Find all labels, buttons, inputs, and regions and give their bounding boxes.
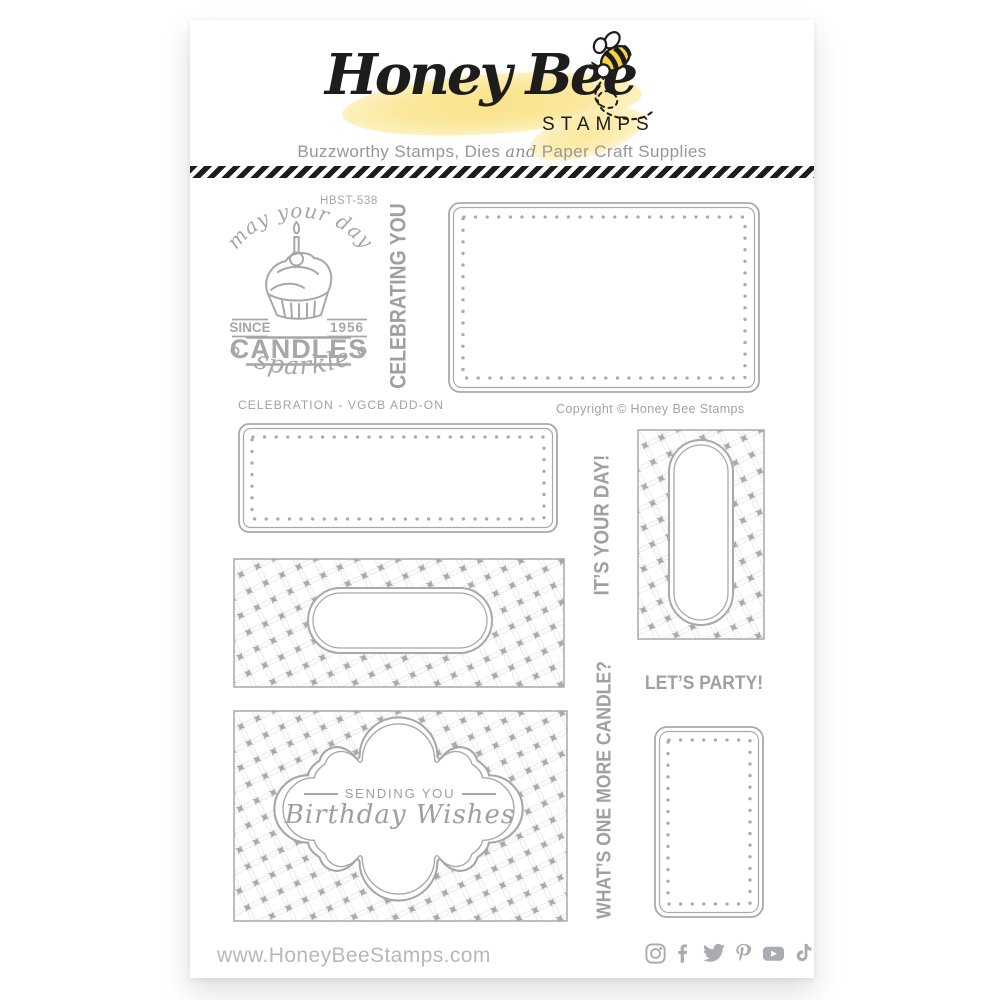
tagline: Buzzworthy Stamps, Dies and Paper Craft … [190,142,814,162]
stamp-text-celebrating-you: CELEBRATING YOU [385,211,413,381]
youtube-icon [761,942,786,965]
instagram-icon [644,942,667,965]
tagline-part1: Buzzworthy Stamps, Dies [297,142,500,161]
cupcake-icon [266,222,331,319]
facebook-icon [673,942,696,965]
sending-you-row: SENDING YOU [295,786,505,801]
pinterest-icon [732,942,755,965]
social-icons-row [644,941,815,965]
tagline-part2: Paper Craft Supplies [542,142,707,161]
bee-icon [582,28,666,128]
stamp-sheet-card: Honey Bee STAMPS Buzzworthy Stamps, Dies… [190,20,814,978]
stamp-text-one-more-candle: WHAT’S ONE MORE CANDLE? [591,678,619,902]
star-panel-horizontal [233,558,565,688]
badge-arc-text: may your day [226,206,378,254]
twitter-icon [702,941,726,965]
tiktok-icon [792,942,815,965]
website-url: www.HoneyBeeStamps.com [217,944,491,968]
star-panel-vertical [637,429,765,640]
stamp-text-sending-you: SENDING YOU [345,786,456,801]
logo-script: Honey Bee [190,42,814,108]
cupcake-badge-stamp: may your day sparkle SINCE 1956 CANDLES [226,206,386,391]
copyright-text: Copyright © Honey Bee Stamps [556,402,745,416]
dotted-frame-medium [238,423,558,533]
product-photo: Honey Bee STAMPS Buzzworthy Stamps, Dies… [0,0,1000,1000]
stamp-text-birthday-wishes: Birthday Wishes [250,800,550,830]
badge-year: 1956 [330,320,364,335]
badge-since: SINCE [229,320,270,335]
label-dash-left [304,793,338,795]
dotted-frame-small [654,726,764,918]
label-dash-right [462,793,496,795]
set-name: CELEBRATION - VGCB ADD-ON [238,398,444,412]
dotted-frame-large [448,202,760,393]
svg-text:may your day: may your day [226,206,378,254]
diagonal-stripe-divider [190,166,814,178]
tagline-and: and [505,142,536,161]
stamp-text-its-your-day: IT’S YOUR DAY! [589,454,617,596]
stamp-text-lets-party: LET’S PARTY! [643,673,764,695]
